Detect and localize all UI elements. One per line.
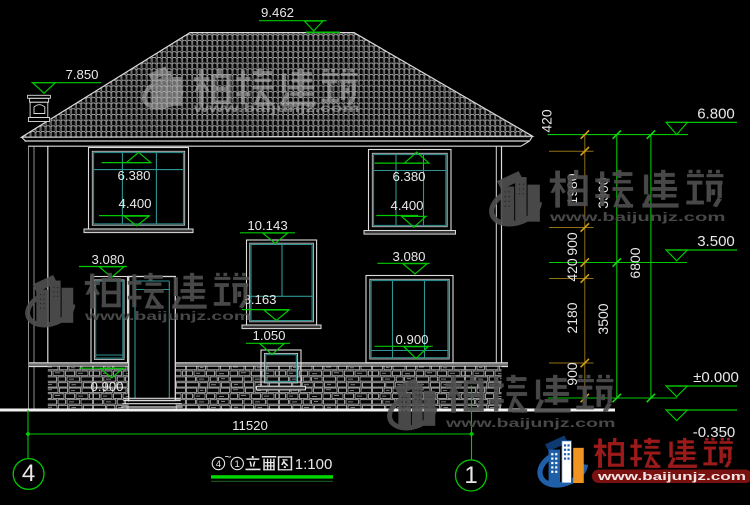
svg-text:6.380: 6.380	[117, 168, 150, 183]
svg-text:4.400: 4.400	[390, 198, 423, 213]
svg-text:1: 1	[464, 462, 477, 489]
svg-text:1.050: 1.050	[252, 328, 285, 343]
svg-text:www.baijunjz.com: www.baijunjz.com	[596, 471, 746, 483]
svg-text:4: 4	[216, 459, 221, 470]
svg-text:420: 420	[539, 109, 555, 133]
svg-text:±0.000: ±0.000	[693, 369, 739, 386]
svg-text:3.080: 3.080	[392, 249, 425, 264]
svg-text:6.800: 6.800	[697, 105, 735, 122]
svg-text:1: 1	[235, 459, 240, 470]
svg-text:www.baijunjz.com: www.baijunjz.com	[83, 309, 251, 323]
svg-text:4.400: 4.400	[118, 196, 151, 211]
svg-text:1:100: 1:100	[295, 456, 333, 473]
svg-text:7.850: 7.850	[65, 67, 98, 82]
svg-text:9.462: 9.462	[261, 5, 294, 20]
svg-text:900: 900	[564, 232, 580, 256]
svg-text:11520: 11520	[232, 418, 268, 433]
svg-text:3.500: 3.500	[697, 233, 735, 250]
svg-text:0.900: 0.900	[395, 332, 428, 347]
svg-text:4: 4	[22, 460, 35, 487]
svg-text:0.900: 0.900	[90, 379, 123, 394]
svg-text:www.baijunjz.com: www.baijunjz.com	[548, 210, 725, 224]
svg-text:2180: 2180	[564, 302, 580, 333]
svg-text:10.143: 10.143	[247, 218, 287, 233]
svg-text:420: 420	[564, 258, 580, 282]
svg-text:6.380: 6.380	[392, 169, 425, 184]
svg-text:8.163: 8.163	[243, 292, 276, 307]
svg-text:www.baijunjz.com: www.baijunjz.com	[444, 416, 615, 430]
svg-text:3.080: 3.080	[91, 252, 124, 267]
svg-text:~: ~	[224, 450, 231, 464]
svg-text:www.baijunjz.com: www.baijunjz.com	[192, 103, 359, 115]
svg-text:6800: 6800	[627, 247, 643, 278]
svg-text:3500: 3500	[595, 303, 611, 334]
